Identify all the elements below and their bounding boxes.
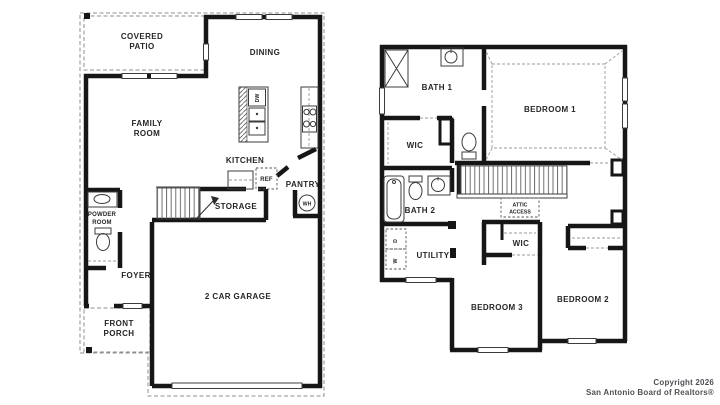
utility-window — [406, 278, 436, 283]
attic-access-label: ACCESS — [509, 210, 531, 216]
powder-room-label: ROOM — [92, 220, 111, 226]
foyer-label: FOYER — [121, 271, 151, 280]
bedroom3-label: BEDROOM 3 — [471, 303, 523, 312]
garage-label: 2 CAR GARAGE — [205, 292, 271, 301]
bedroom2-label: BEDROOM 2 — [557, 295, 609, 304]
wic-middle-label: WIC — [513, 239, 530, 248]
foyer-window — [123, 304, 142, 309]
refrigerator-label: REF — [260, 177, 273, 183]
front-porch-label: FRONT — [104, 319, 134, 328]
porch-post — [86, 347, 92, 353]
floor-plan-drawing: COVERED PATIO DINING FAMILY ROOM KITCHEN… — [0, 0, 720, 405]
copyright-line2: San Antonio Board of Realtors® — [586, 388, 714, 397]
first-floor-stairs — [157, 188, 219, 219]
kitchen-label: KITCHEN — [226, 156, 264, 165]
bath1-label: BATH 1 — [422, 83, 453, 92]
water-heater-label: WH — [303, 202, 312, 208]
bath1-fixtures — [385, 48, 476, 164]
toilet-tank — [462, 152, 476, 159]
bath2-label: BATH 2 — [405, 206, 436, 215]
toilet-bowl — [97, 234, 110, 251]
washer-label: W — [393, 258, 399, 263]
powder-room-fixtures — [88, 192, 118, 261]
covered-patio-label: PATIO — [129, 42, 154, 51]
dining-window — [236, 15, 262, 20]
bedroom1-window — [623, 78, 628, 101]
covered-patio-label: COVERED — [121, 32, 163, 41]
dining-label: DINING — [250, 48, 280, 57]
first-floor-plan: COVERED PATIO DINING FAMILY ROOM KITCHEN… — [80, 13, 324, 396]
second-floor-stairs — [457, 166, 567, 198]
utility-label: UTILITY — [416, 251, 449, 260]
patio-post — [84, 13, 90, 19]
kitchen-cabinet — [228, 171, 253, 189]
toilet-bowl — [409, 183, 422, 200]
wic-upper-label: WIC — [407, 141, 424, 150]
attic-access-label: ATTIC — [513, 203, 528, 209]
bedroom1-window — [623, 104, 628, 128]
storage-label: STORAGE — [215, 202, 257, 211]
bath2-fixtures — [384, 176, 450, 222]
patio-door — [204, 44, 209, 60]
dining-window — [266, 15, 292, 20]
copyright-line1: Copyright 2026 — [653, 378, 714, 387]
dryer-box — [386, 229, 406, 249]
dishwasher-label: DW — [255, 94, 261, 103]
bedroom2-window — [568, 339, 596, 344]
bedroom1-label: BEDROOM 1 — [524, 105, 576, 114]
family-room-label: ROOM — [134, 129, 161, 138]
bedroom3-window — [478, 348, 508, 353]
kitchen-island — [239, 87, 268, 142]
dryer-label: D — [393, 239, 399, 243]
family-room-label: FAMILY — [132, 119, 163, 128]
kitchen-counter-stove — [301, 87, 318, 148]
floor-plan-page: COVERED PATIO DINING FAMILY ROOM KITCHEN… — [0, 0, 720, 405]
toilet-tank — [409, 176, 422, 182]
powder-sink — [94, 195, 110, 204]
powder-room-label: POWDER — [88, 212, 117, 218]
garage-door — [172, 383, 302, 389]
front-porch-label: PORCH — [104, 329, 135, 338]
second-floor-plan: BATH 1 BEDROOM 1 WIC BATH 2 ATTIC ACCESS… — [380, 45, 628, 353]
bath1-window — [380, 88, 385, 114]
pantry-label: PANTRY — [286, 180, 321, 189]
copyright-notice: Copyright 2026 San Antonio Board of Real… — [586, 378, 714, 397]
stair-railing — [457, 194, 567, 198]
toilet-bowl — [462, 133, 476, 151]
